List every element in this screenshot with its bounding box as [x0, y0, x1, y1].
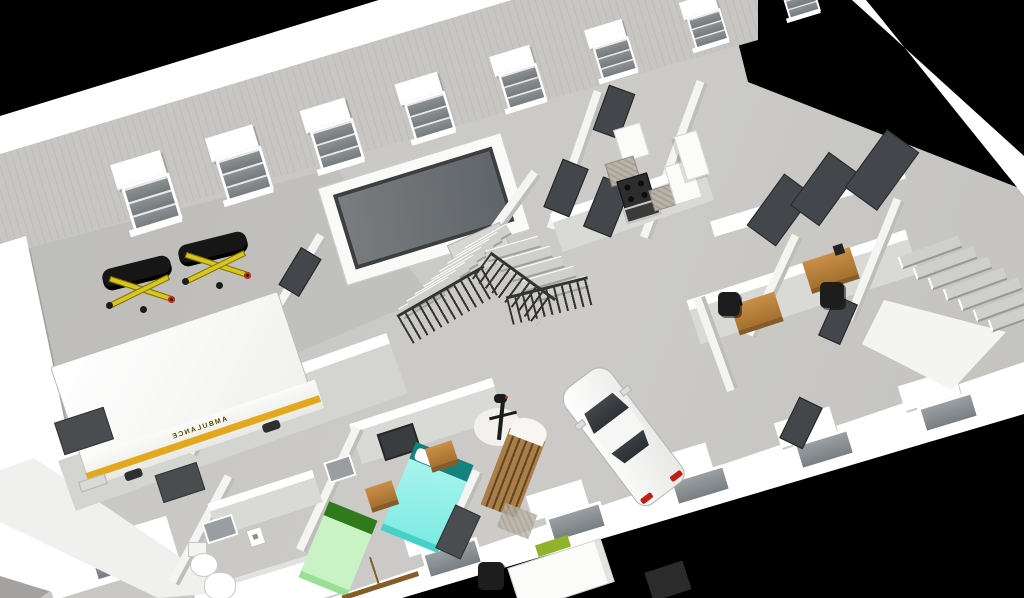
pedestal-sink: [204, 572, 236, 598]
3d-floorplan-viewport[interactable]: AMBULANCE: [0, 0, 1024, 598]
fixture-dot: [252, 534, 258, 540]
stretcher-wheel: [140, 306, 147, 313]
stretcher: [172, 234, 264, 292]
car-taillight: [669, 470, 683, 483]
office-chair-2: [820, 282, 844, 308]
dark-cabinet: [644, 561, 691, 598]
car-body: [557, 361, 690, 511]
rack-post: [497, 400, 505, 440]
stretcher-wheel: [168, 296, 175, 303]
white-sedan: [558, 356, 688, 516]
stretcher-wheel: [244, 272, 251, 279]
stretcher-wheel: [106, 302, 113, 309]
office-chair-1: [718, 292, 740, 316]
stretcher-wheel: [216, 282, 223, 289]
office-chair-3: [478, 562, 504, 590]
car-mirror: [574, 419, 587, 431]
ambulance-rear-step: [78, 473, 108, 492]
stretcher-wheel: [182, 278, 189, 285]
car-taillight: [640, 492, 654, 505]
rack-red-knob: [505, 396, 508, 399]
car-mirror: [619, 385, 632, 397]
